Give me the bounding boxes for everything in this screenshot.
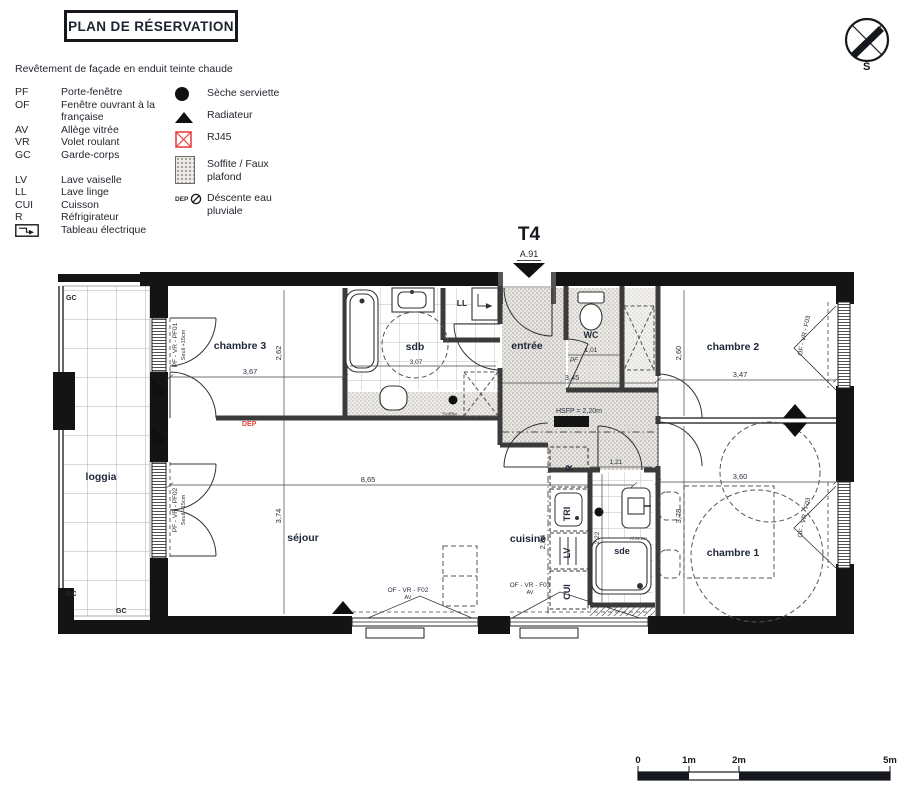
note-pf: PF [570,358,578,364]
note-gc-bottom: GC [66,591,77,598]
dim-kitchen-h: 2,84 [538,535,547,550]
window-label-f03-1: OF - VR - F03 [797,315,812,357]
label-sorting: TRI [562,507,572,522]
scale-1m: 1m [682,755,696,766]
dim-ch3-w: 3,67 [243,367,258,376]
room-label-wc: WC [584,330,599,340]
note-dep: DEP [242,421,257,428]
label-dishwasher: LV [562,548,572,559]
floor-plan: loggia chambre 3 sdb entrée WC chambre 2… [0,0,915,800]
dim-ch1-w: 3,60 [733,472,748,481]
window-label-f02-2-av: AV [527,590,534,596]
note-gc-bottom2: GC [116,608,127,615]
room-label-sejour: séjour [287,532,319,544]
room-label-entree: entrée [511,340,543,352]
note-soffite: Soffite [442,412,458,418]
room-label-chambre1: chambre 1 [707,547,760,559]
window-label-pf02-sill: Seuil +15cm [181,494,187,525]
window-label-f03-2: OF - VR - F03 [797,497,812,539]
note-reseau: réseau [630,536,647,542]
window-label-f02-1-av: AV [405,595,412,601]
scale-bar: 0 1m 2m 5m [635,755,897,780]
window-label-f02-1: OF - VR - F02 [388,587,429,594]
partition-chambre2-chambre1 [658,418,836,423]
kitchen-labels: R TRI LV CUI [562,464,574,600]
room-label-chambre3: chambre 3 [214,340,267,352]
compass: S [846,19,888,73]
label-lave-linge: LL [457,298,467,308]
dim-ch3-h: 2,62 [274,346,283,361]
dim-entree-w: 3,45 [565,373,580,382]
dim-sejour-w: 8,65 [361,475,376,484]
scale-2m: 2m [732,755,746,766]
note-hsfp: HSFP = 2,20m [556,408,602,415]
towel-dryer-sdb [449,396,458,405]
dim-sde-h: 2,22 [594,531,601,544]
room-label-sde: sde [614,546,630,556]
window-label-pf01-sill: Seuil +15cm [181,329,187,360]
label-cooking: CUI [562,584,572,600]
label-fridge: R [564,464,574,471]
dim-ch1-h: 3,78 [674,509,683,524]
compass-south-label: S [863,61,870,73]
scale-0: 0 [635,755,640,766]
compass-needle [851,26,884,58]
page: PLAN DE RÉSERVATION Revêtement de façade… [0,0,915,800]
note-gc-top: GC [66,295,77,302]
dim-ch2-h: 2,60 [674,346,683,361]
dim-sejour-h: 3,74 [274,509,283,524]
dim-sde-w: 1,21 [610,459,623,466]
dim-ch2-w: 3,47 [733,370,748,379]
dim-wc-w: 1,01 [585,347,598,354]
room-label-chambre2: chambre 2 [707,341,760,353]
room-label-loggia: loggia [86,471,117,483]
scale-5m: 5m [883,755,897,766]
window-label-pf02: PF - VR - PF02 [172,487,179,532]
window-label-f02-2: OF - VR - F02 [510,582,551,589]
room-label-sdb: sdb [406,341,425,353]
dim-sdb-w: 3,07 [410,359,423,366]
window-label-pf01: PF - VR - PF01 [172,322,179,367]
